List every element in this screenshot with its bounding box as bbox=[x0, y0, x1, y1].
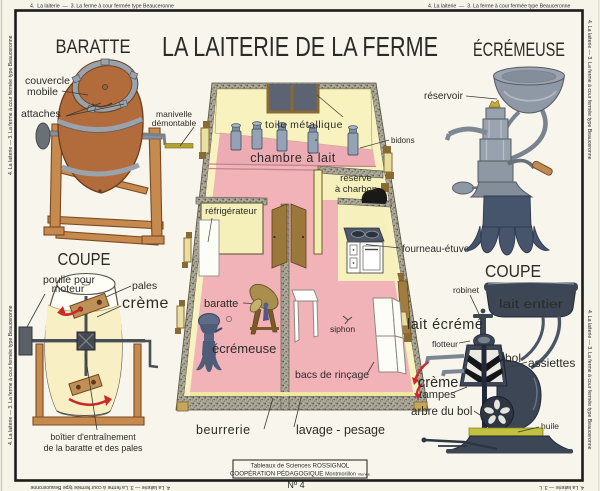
svg-text:bol: bol bbox=[505, 351, 521, 365]
svg-text:robinet: robinet bbox=[453, 285, 480, 295]
svg-text:fourneau-étuve: fourneau-étuve bbox=[402, 244, 470, 255]
svg-text:chambre à lait: chambre à lait bbox=[250, 151, 336, 165]
svg-text:ÉCRÉMEUSE: ÉCRÉMEUSE bbox=[473, 38, 565, 61]
svg-text:bidons: bidons bbox=[391, 136, 415, 145]
svg-text:4. La laiterie — 3. La ferme à: 4. La laiterie — 3. La ferme à cour ferm… bbox=[8, 305, 14, 445]
svg-text:de la baratte et des pales: de la baratte et des pales bbox=[44, 443, 143, 453]
svg-text:assiettes: assiettes bbox=[528, 356, 575, 370]
svg-text:écrémeuse: écrémeuse bbox=[212, 341, 276, 356]
svg-text:flotteur: flotteur bbox=[432, 339, 458, 349]
svg-text:arbre du bol: arbre du bol bbox=[411, 406, 472, 418]
svg-text:baratte: baratte bbox=[204, 298, 238, 310]
svg-text:crème: crème bbox=[122, 295, 169, 312]
svg-text:beurrerie: beurrerie bbox=[196, 423, 251, 437]
svg-text:4. La laiterie — 3. La ferme à: 4. La laiterie — 3. La ferme à cour ferm… bbox=[586, 20, 592, 160]
svg-text:rampes: rampes bbox=[419, 389, 456, 401]
svg-text:lait entier: lait entier bbox=[499, 299, 563, 311]
svg-text:Nº 4: Nº 4 bbox=[287, 480, 304, 490]
svg-text:4. La laiterie — 3. La ferme à: 4. La laiterie — 3. La ferme à cour ferm… bbox=[30, 484, 170, 490]
svg-text:moteur: moteur bbox=[52, 283, 85, 295]
svg-text:4. La laiterie — 3. La ferme à: 4. La laiterie — 3. La ferme à cour ferm… bbox=[8, 35, 14, 175]
svg-text:attaches: attaches bbox=[21, 108, 61, 120]
svg-text:4. La laiterie — 3. La ferm: 4. La laiterie — 3. La ferme à cour ferm… bbox=[30, 4, 174, 10]
svg-text:bacs de rinçage: bacs de rinçage bbox=[295, 369, 369, 381]
svg-text:pales: pales bbox=[132, 280, 157, 292]
svg-text:LA LAITERIE DE LA FERME: LA LAITERIE DE LA FERME bbox=[162, 31, 438, 62]
svg-text:huile: huile bbox=[541, 421, 559, 431]
svg-text:démontable: démontable bbox=[152, 118, 197, 128]
svg-text:réserve: réserve bbox=[340, 173, 372, 184]
svg-text:toile métallique: toile métallique bbox=[265, 119, 343, 131]
svg-text:siphon: siphon bbox=[330, 324, 355, 334]
svg-text:à charbon: à charbon bbox=[335, 184, 377, 195]
svg-text:lait écrémé: lait écrémé bbox=[407, 317, 483, 333]
svg-text:COUPE: COUPE bbox=[485, 261, 541, 281]
svg-text:4. La laiterie — 3. La ferme: 4. La laiterie — 3. La ferme à cour ferm… bbox=[428, 4, 571, 10]
svg-text:réservoir: réservoir bbox=[424, 91, 464, 102]
svg-text:4. La laiterie — 3. L: 4. La laiterie — 3. L bbox=[539, 484, 584, 490]
svg-text:lavage - pesage: lavage - pesage bbox=[296, 423, 385, 437]
svg-text:COUPE: COUPE bbox=[58, 249, 111, 269]
svg-text:4. La laiterie — 3. La ferme à: 4. La laiterie — 3. La ferme à cour ferm… bbox=[586, 310, 592, 450]
svg-text:réfrigérateur: réfrigérateur bbox=[205, 206, 257, 217]
svg-text:Tableaux de Sciences ROSSIGNOL: Tableaux de Sciences ROSSIGNOL bbox=[251, 463, 350, 470]
svg-text:BARATTE: BARATTE bbox=[56, 36, 131, 58]
svg-text:mobile: mobile bbox=[27, 86, 58, 98]
svg-text:COOPÉRATION PÉDAGOGIQUE Montmo: COOPÉRATION PÉDAGOGIQUE Montmorillon Vie… bbox=[230, 471, 371, 478]
svg-text:boîtier d'entraînement: boîtier d'entraînement bbox=[50, 432, 136, 442]
